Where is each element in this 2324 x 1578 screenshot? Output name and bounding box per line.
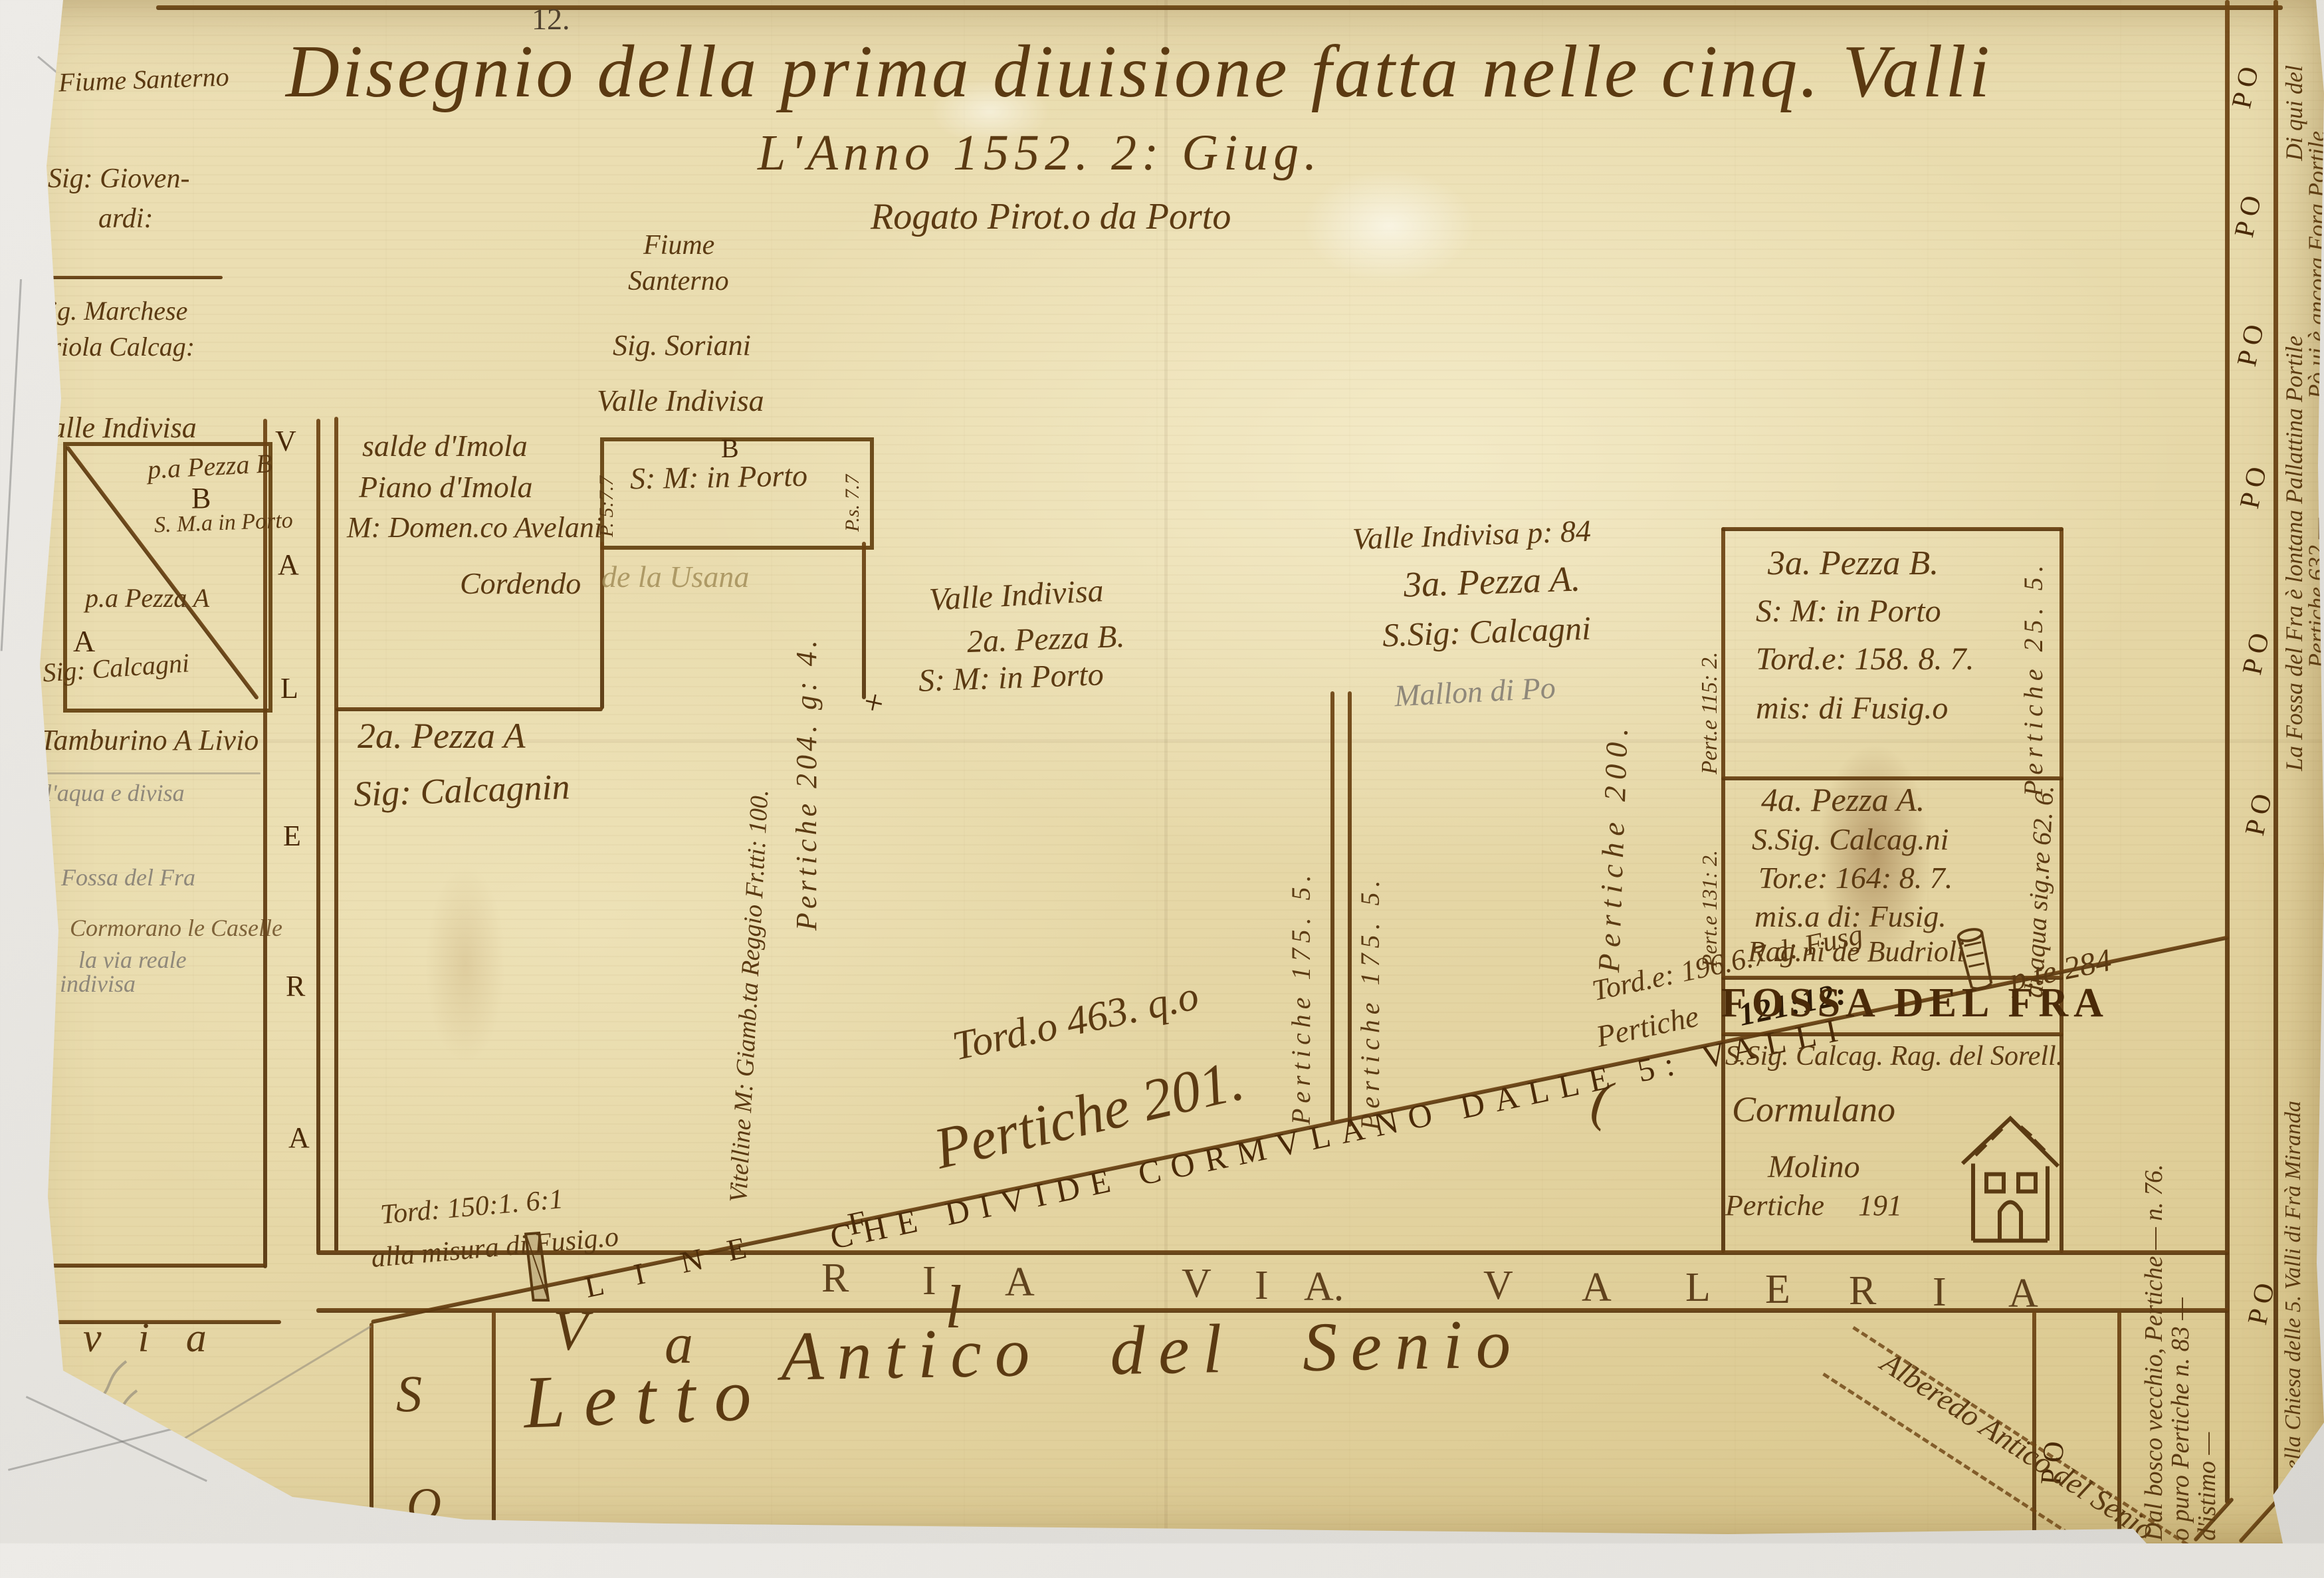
annotation-tamburino: Tamburino A Livio xyxy=(40,726,259,755)
rc-box1-right-measure: Pertiche 25. 5. xyxy=(2020,560,2047,797)
pezza-3a-faded-note: Mallon di Po xyxy=(1394,673,1556,712)
margin-note: La Fossa del Fra è lontana Pallattina Po… xyxy=(2282,336,2306,771)
letto-label: Letto xyxy=(522,1357,771,1440)
fold-crease-horizontal xyxy=(0,739,2324,742)
road-letter: A. xyxy=(1304,1266,1344,1307)
road-letter-cursive: V xyxy=(553,1301,588,1359)
via-label: via xyxy=(83,1317,243,1359)
annotation-santerno: Santerno xyxy=(628,267,729,295)
pezza-2a-misura: alla misura di Fusig.o xyxy=(370,1223,620,1272)
margin-note: Dal bosco vecchio, Pertiche — n. 76. xyxy=(2141,1164,2166,1541)
rc-box1-left-measure: Pert.e 115: 2. xyxy=(1699,652,1721,774)
margin-note: Di qui del xyxy=(2282,65,2306,161)
left-road-letter: E xyxy=(283,822,301,851)
pezza-2a-label: 2a. Pezza A xyxy=(358,718,526,754)
bottom-left-road-line xyxy=(492,1311,496,1537)
measure-pertiche-175-left: Pertiche 175. 5. xyxy=(1288,870,1315,1125)
road-letter: I xyxy=(922,1260,936,1301)
right-column-divider xyxy=(1721,776,2063,780)
rc-box1-misura: mis: di Fusig.o xyxy=(1756,693,1948,725)
middle-road-line xyxy=(1348,691,1352,1127)
measure-pertiche-204: Pertiche 204. g: 4. xyxy=(792,636,821,931)
annotation-valle-indivisa: Valle Indivisa xyxy=(37,413,197,443)
pencil-rule xyxy=(41,772,261,774)
right-column-top xyxy=(1721,527,2063,531)
road-letter: A xyxy=(2008,1273,2038,1314)
left-road-letter: A xyxy=(278,550,299,580)
prima-pezza-a-letter: A xyxy=(73,626,95,657)
margin-note: d'istimo — xyxy=(2194,1432,2220,1541)
left-road-letter: R xyxy=(286,972,305,1001)
road-letter: I xyxy=(1255,1265,1269,1306)
left-road-letter: A xyxy=(288,1123,310,1153)
mill-house-icon xyxy=(1957,1109,2063,1245)
left-road-letter: L xyxy=(280,674,298,703)
paper-stain xyxy=(425,864,505,1064)
annotation-fiume-santerno: Fiume Santerno xyxy=(58,64,229,96)
pezza-2b-valle: Valle Indivisa xyxy=(928,575,1105,616)
po-river-label: P O xyxy=(2233,322,2269,369)
left-road-line xyxy=(263,419,267,1268)
annotation-via-reale: la via reale xyxy=(78,948,187,972)
middle-road-line xyxy=(1330,691,1334,1122)
parchment-sheet: 12. Disegnio della prima diuisione fatta… xyxy=(0,0,2324,1543)
paper-stain xyxy=(1303,169,1475,282)
road-letter-cursive: O xyxy=(407,1481,441,1529)
road-letter: I xyxy=(1933,1272,1947,1313)
map-frame-top-line xyxy=(156,5,2283,10)
rc-box1-tornature: Tord.e: 158. 8. 7. xyxy=(1756,643,1974,675)
rc-box1-label: 3a. Pezza B. xyxy=(1768,546,1939,581)
rc-box2-ragioni: Rag.ni de Budrioli xyxy=(1748,937,1964,966)
annotation-soriani: Sig. Soriani xyxy=(613,331,751,360)
backing-crack xyxy=(1,279,22,651)
road-letter: V xyxy=(1483,1265,1513,1306)
rc-box2-misura: mis.a di: Fusig. xyxy=(1754,901,1947,932)
left-road-letter: V xyxy=(275,427,296,456)
fossa-del-fra-strip: FOSSA DEL FRA xyxy=(1721,982,2063,1024)
pezza-2a-tornature: Tord: 150:1. 6:1 xyxy=(379,1185,564,1229)
parcel-b-left-measure: P. 5:7.7 xyxy=(597,476,617,537)
po-river-label: P O xyxy=(2236,465,2271,511)
margin-note: Fossa nella Chiesa delle 5. Valli di Frà… xyxy=(2282,1101,2305,1541)
pezza-2a-top-line xyxy=(336,707,603,711)
right-river-line-inner xyxy=(2225,0,2230,1504)
backing-crack xyxy=(8,1427,176,1471)
diagonal-tornature-463: Tord.o 463. q.o xyxy=(949,975,1202,1068)
rc-box3-molino: Molino xyxy=(1768,1151,1860,1183)
antico-del-senio-label: Antico del Senio xyxy=(780,1308,1525,1391)
bottom-left-road-line xyxy=(370,1323,373,1534)
po-river-label: P O xyxy=(2230,193,2266,240)
po-river-label: P O xyxy=(2238,631,2274,677)
right-river-bend xyxy=(2238,1498,2279,1543)
rc-box3-owners: S.Sig. Calcag. Rag. del Sorell. xyxy=(1725,1042,2063,1070)
right-river-line-outer xyxy=(2273,0,2278,1496)
pezza-3a-valle: Valle Indivisa p: 84 xyxy=(1352,516,1591,555)
pezza-3a-owner: S.Sig: Calcagni xyxy=(1382,612,1591,652)
left-road-stub-top xyxy=(37,1264,266,1268)
rc-box2-owner: S.Sig. Calcag.ni xyxy=(1752,824,1949,855)
annotation-fiume: Fiume xyxy=(643,231,714,259)
parcel-b-extension-right xyxy=(862,542,866,699)
imola-note: Piano d'Imola xyxy=(359,472,533,503)
margin-note: Pertiche 632 — xyxy=(2305,518,2324,668)
prima-pezza-b-church: S. M.a in Porto xyxy=(154,509,293,536)
annotation-valle-indivisa-2: Valle Indivisa xyxy=(597,386,764,416)
annotation-marchese: Eriola Calcag: xyxy=(35,334,195,360)
annotation-acqua-divisa: l'aqua e divisa xyxy=(45,781,185,805)
right-column-left-edge xyxy=(1721,527,1725,1253)
annotation-fossa-del-fra: Fossa del Fra xyxy=(61,865,195,889)
rc-box1-church: S: M: in Porto xyxy=(1756,596,1941,627)
road-letter: R xyxy=(821,1258,849,1299)
margin-note: Pò ui è ancora Fora Portile xyxy=(2305,131,2324,399)
measure-vitelline: Vitelline M: Giamb.ta Reggio Fr.tti: 100… xyxy=(726,789,773,1203)
bottom-right-road-line xyxy=(2032,1311,2036,1534)
left-road-line xyxy=(316,419,320,1253)
prima-pezza-a-label: p.a Pezza A xyxy=(85,585,209,612)
road-letter: A xyxy=(1582,1267,1612,1308)
annotation-cormorano: Cormorano le Caselle xyxy=(70,916,282,940)
rc-box3-cormulano: Cormulano xyxy=(1732,1091,1895,1127)
rc-box2-left-measure: Pert.e 131: 2. xyxy=(1699,850,1720,967)
prima-pezza-b-letter: B xyxy=(191,484,211,513)
parcel-boundary-vertical xyxy=(334,417,338,1252)
rc-box2-label: 4a. Pezza A. xyxy=(1761,783,1925,816)
road-letter: L xyxy=(1685,1267,1711,1308)
measure-pertiche-175-right: Pertiche 175. 5. xyxy=(1357,875,1384,1131)
parcel-b-letter: B xyxy=(721,435,739,462)
margin-note: o puro Pertiche n. 83 — xyxy=(2168,1297,2193,1541)
road-letter-cursive: S xyxy=(396,1368,422,1420)
parcel-b-right-measure: P.s. 7.7 xyxy=(843,475,863,532)
pezza-2b-church: S: M: in Porto xyxy=(918,659,1104,697)
rc-box2-tornature: Tor.e: 164: 8. 7. xyxy=(1758,863,1953,893)
measure-pertiche-200: Pertiche 200. xyxy=(1594,721,1633,972)
pezza-2a-owner: Sig: Calcagnin xyxy=(353,768,570,812)
usana-note-faded: de la Usana xyxy=(601,562,749,592)
annotation-giovenardi: Sig: Gioven- xyxy=(48,165,189,193)
linea-letter: N xyxy=(678,1244,706,1278)
road-letter: A xyxy=(1005,1262,1035,1303)
map-title-notary: Rogato Pirot.o da Porto xyxy=(871,198,1231,235)
annotation-indivisa: indivisa xyxy=(60,972,136,996)
parcel-b-church: S: M: in Porto xyxy=(630,461,808,495)
scanned-manuscript-map: { "page_number": "12.", "title": { "line… xyxy=(0,0,2324,1543)
linea-letter: E xyxy=(724,1232,749,1266)
road-letter: E xyxy=(1765,1269,1790,1310)
prima-pezza-b-label: p.a Pezza B xyxy=(147,450,273,483)
illegible-pencil-note xyxy=(9,1353,149,1543)
annotation-marchese: Sig. Marchese xyxy=(37,298,187,324)
imola-note: M: Domen.co Avelani xyxy=(347,513,602,542)
map-title: Disegnio della prima diuisione fatta nel… xyxy=(286,35,1992,109)
annotation-giovenardi: ardi: xyxy=(98,205,153,233)
pezza-3a-label: 3a. Pezza A. xyxy=(1403,560,1581,602)
rc-box3-pertiche-191: Pertiche 191 xyxy=(1725,1191,1902,1220)
road-letter: R xyxy=(1849,1270,1876,1311)
map-title-year: L'Anno 1552. 2: Giug. xyxy=(758,128,1322,178)
imola-note: salde d'Imola xyxy=(362,431,528,461)
road-letter: V xyxy=(1182,1263,1212,1304)
pezza-2b-label: 2a. Pezza B. xyxy=(966,621,1125,658)
margin-rule xyxy=(37,276,223,279)
po-river-label: P O xyxy=(2241,792,2277,838)
usana-note: Cordendo xyxy=(460,568,581,599)
po-river-label: P O xyxy=(2228,64,2264,111)
